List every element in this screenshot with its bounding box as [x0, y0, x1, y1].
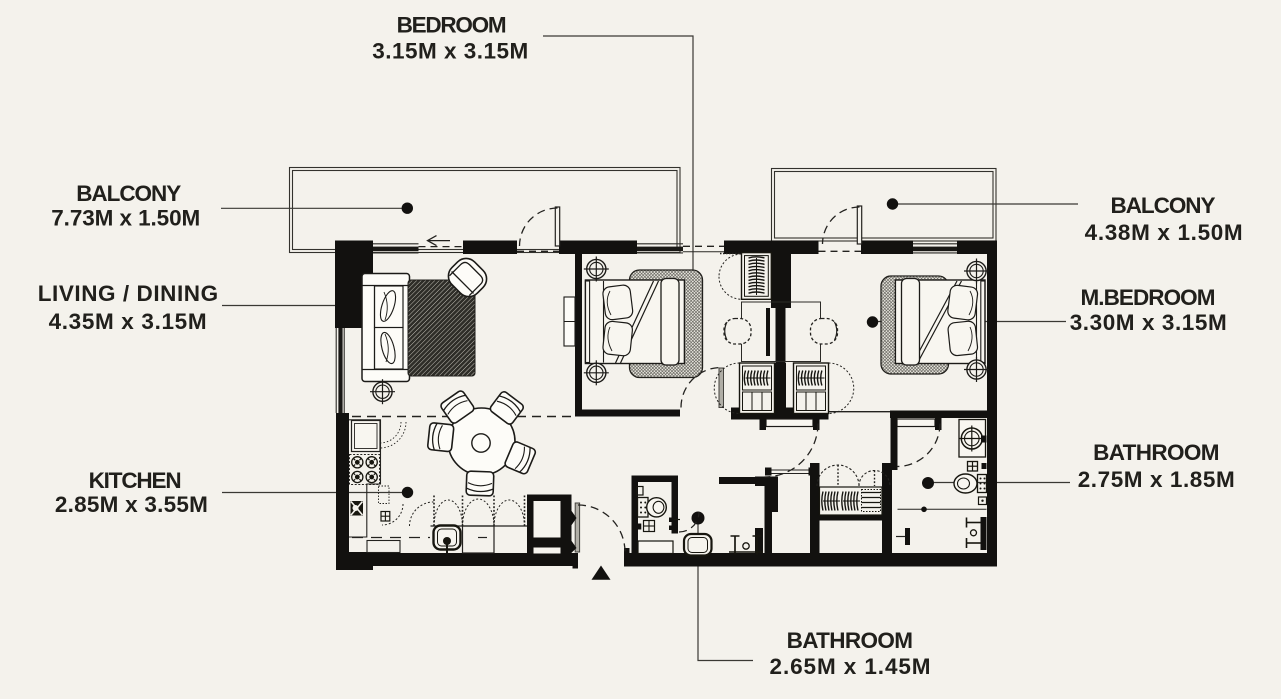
- svg-text:2.85M x 3.55M: 2.85M x 3.55M: [55, 492, 208, 517]
- svg-text:KITCHEN: KITCHEN: [89, 468, 181, 493]
- svg-text:LIVING / DINING: LIVING / DINING: [38, 281, 219, 306]
- svg-text:7.73M x 1.50M: 7.73M x 1.50M: [51, 206, 200, 231]
- svg-text:BALCONY: BALCONY: [76, 181, 181, 206]
- svg-text:BEDROOM: BEDROOM: [397, 13, 506, 38]
- svg-text:2.65M x 1.45M: 2.65M x 1.45M: [770, 654, 932, 679]
- svg-text:2.75M x 1.85M: 2.75M x 1.85M: [1078, 467, 1236, 492]
- svg-text:4.38M x 1.50M: 4.38M x 1.50M: [1085, 220, 1244, 245]
- svg-text:BALCONY: BALCONY: [1111, 193, 1216, 218]
- svg-text:BATHROOM: BATHROOM: [787, 628, 913, 653]
- svg-text:3.30M x 3.15M: 3.30M x 3.15M: [1070, 310, 1228, 335]
- svg-text:4.35M x 3.15M: 4.35M x 3.15M: [49, 309, 208, 334]
- svg-text:3.15M x 3.15M: 3.15M x 3.15M: [372, 39, 528, 64]
- svg-text:M.BEDROOM: M.BEDROOM: [1080, 285, 1214, 310]
- svg-text:BATHROOM: BATHROOM: [1093, 440, 1219, 465]
